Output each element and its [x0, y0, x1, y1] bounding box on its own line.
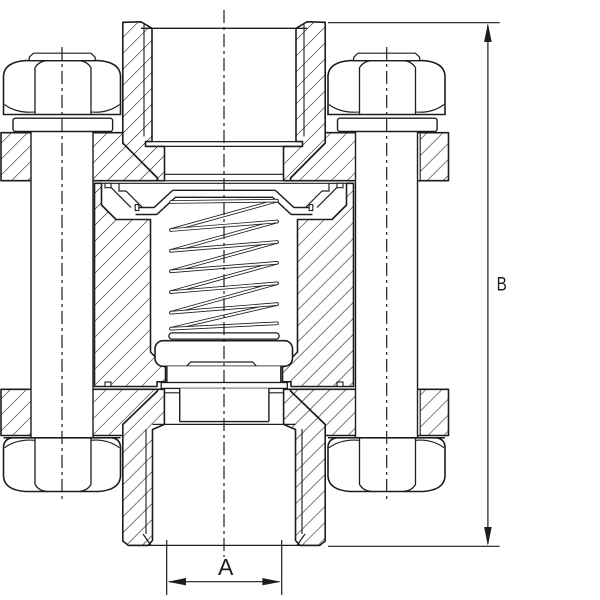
svg-text:A: A: [218, 554, 234, 580]
svg-text:B: B: [497, 274, 507, 295]
